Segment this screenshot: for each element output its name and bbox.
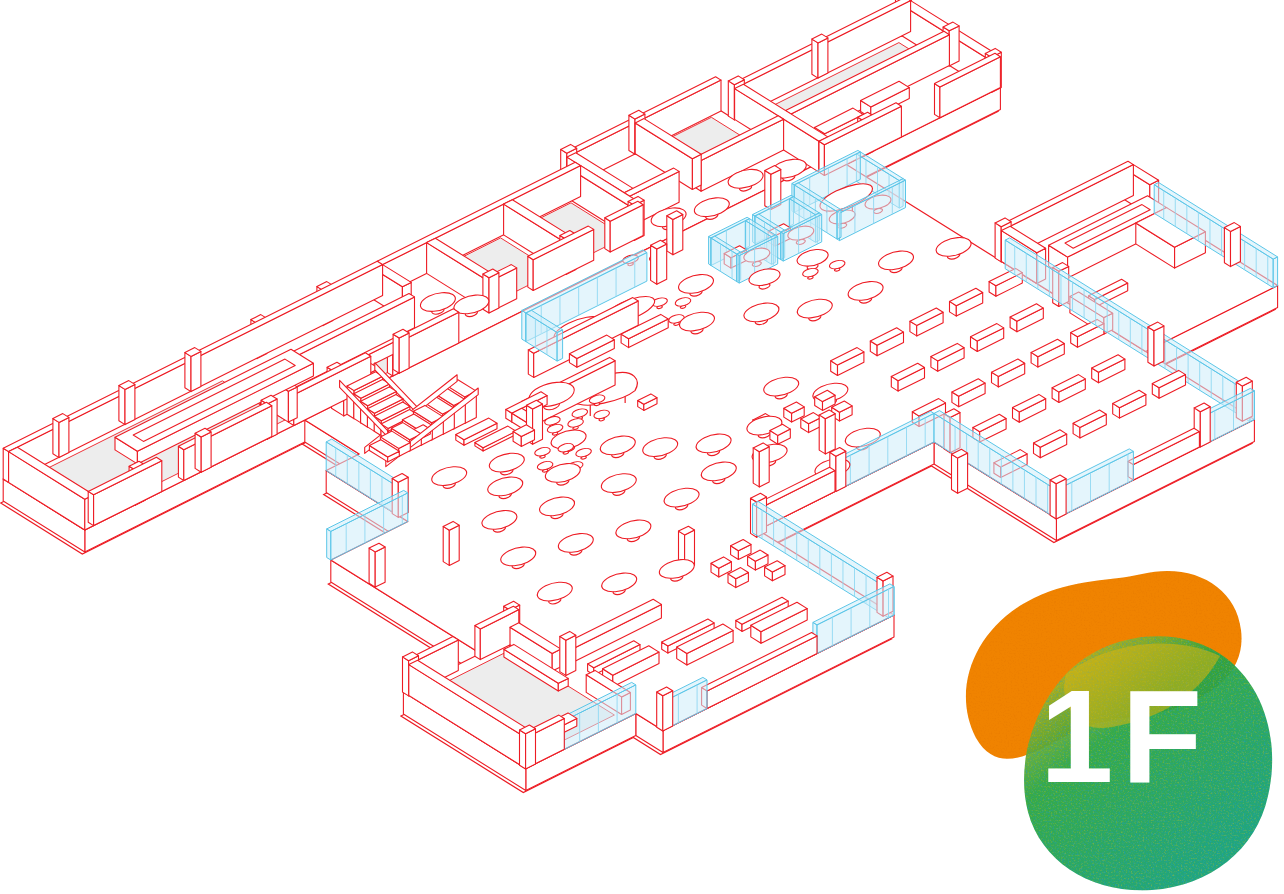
hall-column (375, 547, 385, 587)
gallery-pillar (53, 419, 59, 458)
column (995, 223, 1001, 262)
gallery-interior-wall (288, 387, 297, 422)
hall-west-glass (327, 529, 331, 560)
gallery-pillar (393, 334, 399, 373)
north-rooms-wall (528, 256, 533, 290)
hall-column (759, 447, 769, 487)
column (818, 38, 828, 78)
hall-column (449, 525, 459, 565)
column (1231, 226, 1241, 266)
gallery-pillar (119, 386, 125, 425)
gallery-pillar (201, 432, 211, 472)
east-room-glass (1273, 257, 1277, 288)
gallery-north-wall (3, 448, 8, 482)
hall-column (825, 414, 835, 454)
gallery-pillar (191, 351, 201, 391)
gallery-pillar (195, 433, 201, 472)
column (1224, 228, 1230, 267)
floor-badge: 1F (948, 550, 1284, 894)
column (728, 81, 734, 120)
column (489, 273, 499, 313)
north-rooms-b-wall (692, 154, 701, 189)
floorplan-stage: 1F (0, 0, 1284, 894)
column (1148, 327, 1154, 366)
column (657, 244, 667, 284)
hall-column (819, 415, 825, 454)
lounge-glass-north (522, 310, 526, 341)
north-rooms-wall (605, 218, 610, 252)
hall-partition-wall (528, 350, 533, 378)
gallery-south-wall (88, 491, 93, 525)
column (1050, 480, 1056, 519)
gallery-pillar (125, 384, 135, 424)
floor-badge-blobs (948, 550, 1284, 894)
column (403, 657, 409, 696)
hall-column (369, 548, 375, 587)
column (629, 115, 635, 154)
lounge-glass-west (557, 330, 563, 361)
column (657, 692, 663, 731)
column (949, 26, 959, 66)
column (651, 245, 657, 284)
hall-column (667, 216, 673, 255)
column (812, 39, 818, 78)
column (1200, 407, 1210, 447)
gallery-pillar (399, 333, 409, 373)
column (526, 729, 536, 769)
hall-column (958, 453, 968, 493)
column (663, 691, 673, 731)
column (836, 451, 846, 491)
hall-column (673, 215, 683, 255)
gallery-pillar (185, 353, 191, 392)
top-right-wing-wall (935, 84, 940, 118)
gallery-south-wall (178, 446, 183, 480)
column (520, 730, 526, 769)
column (1056, 479, 1066, 519)
hall-column (443, 526, 449, 565)
column (1154, 326, 1164, 366)
hall-column (952, 454, 958, 493)
booth-glass (837, 210, 841, 239)
hall-column (560, 636, 566, 675)
hall-column (566, 635, 576, 675)
hall-column (765, 171, 771, 210)
gallery-pillar (59, 417, 69, 457)
south-room-wall (475, 626, 480, 660)
hall-column (753, 448, 759, 487)
